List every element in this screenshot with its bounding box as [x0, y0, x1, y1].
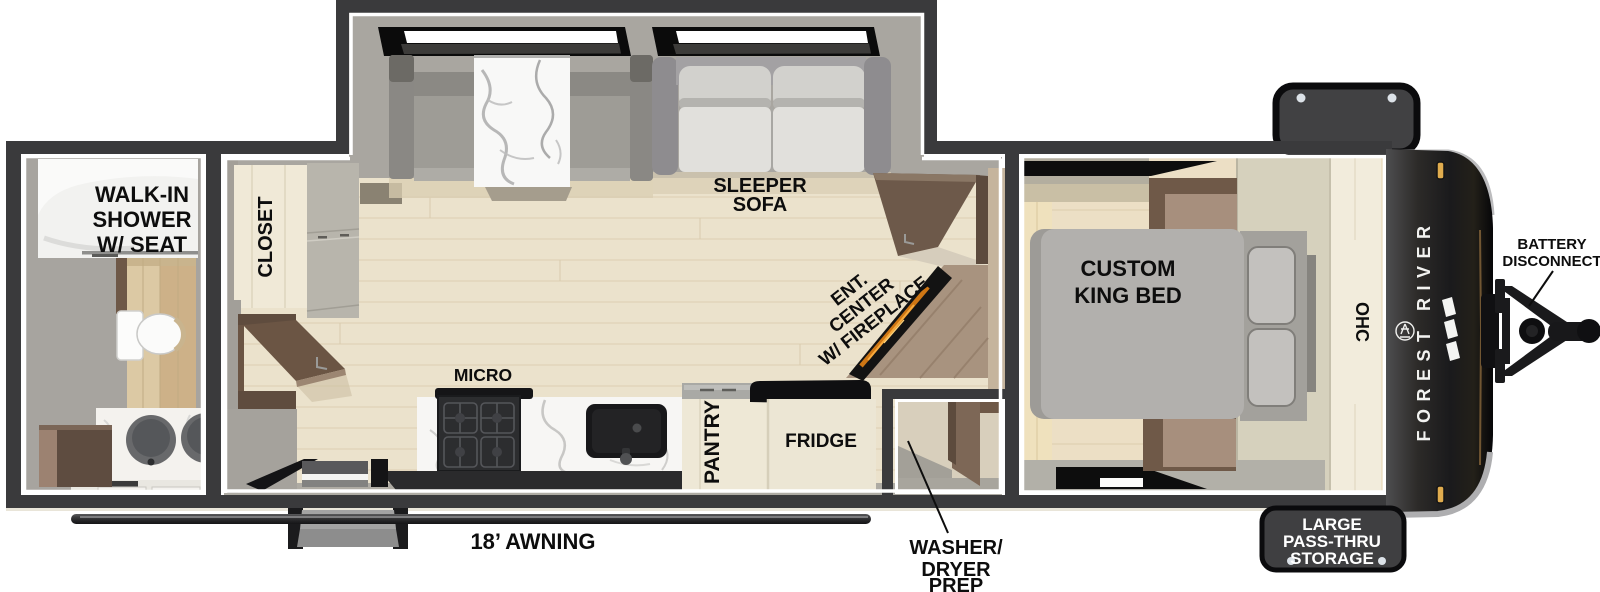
svg-text:DISCONNECT: DISCONNECT	[1502, 253, 1600, 270]
svg-text:FRIDGE: FRIDGE	[785, 431, 857, 452]
svg-text:KING BED: KING BED	[1074, 283, 1182, 308]
svg-text:PREP: PREP	[929, 575, 983, 592]
svg-text:CLOSET: CLOSET	[255, 196, 277, 277]
svg-text:MICRO: MICRO	[454, 365, 512, 385]
svg-text:WALK-IN: WALK-IN	[95, 182, 189, 207]
svg-text:PANTRY: PANTRY	[701, 400, 724, 484]
svg-text:SOFA: SOFA	[733, 194, 787, 216]
svg-text:18’ AWNING: 18’ AWNING	[470, 529, 595, 554]
svg-text:CUSTOM: CUSTOM	[1081, 256, 1176, 281]
svg-text:W/ SEAT: W/ SEAT	[97, 232, 188, 257]
svg-text:OHC: OHC	[1352, 302, 1372, 342]
svg-text:BATTERY: BATTERY	[1517, 236, 1586, 253]
svg-text:SHOWER: SHOWER	[93, 207, 192, 232]
svg-text:WASHER/: WASHER/	[909, 537, 1003, 559]
svg-text:STORAGE: STORAGE	[1290, 549, 1374, 568]
svg-text:FOREST RIVER: FOREST RIVER	[1414, 218, 1434, 441]
